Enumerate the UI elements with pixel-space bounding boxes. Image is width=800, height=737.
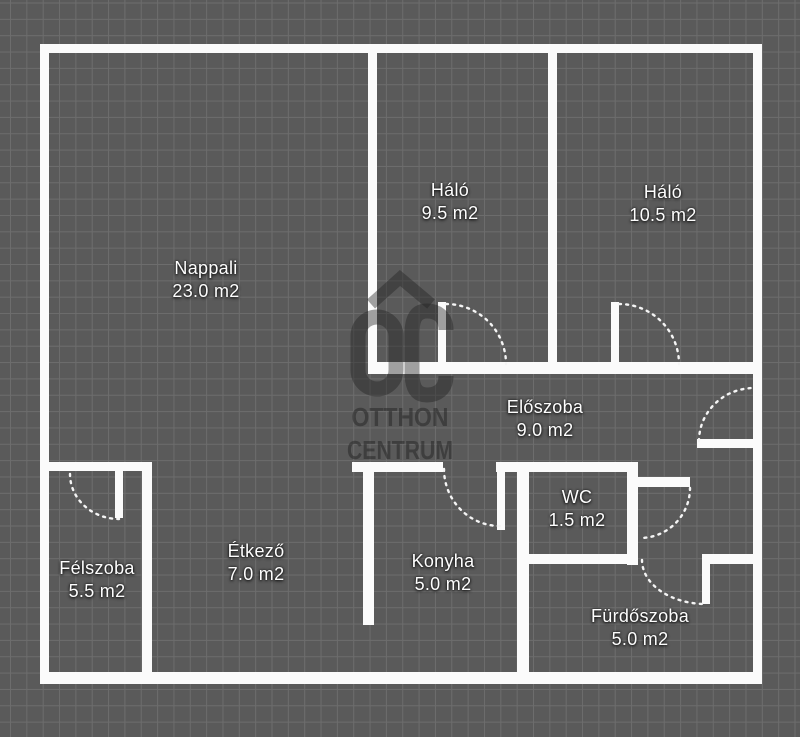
room-name: Nappali: [172, 257, 239, 280]
room-name: Előszoba: [507, 396, 583, 419]
room-name: Háló: [422, 179, 479, 202]
room-name: Konyha: [412, 550, 475, 573]
watermark-roof-icon: [371, 278, 431, 304]
room-name: Félszoba: [59, 557, 134, 580]
room-label-halo-1: Háló 9.5 m2: [422, 179, 479, 225]
room-area: 9.5 m2: [422, 202, 479, 225]
room-area: 5.0 m2: [412, 573, 475, 596]
room-label-nappali: Nappali 23.0 m2: [172, 257, 239, 303]
room-name: Háló: [629, 181, 696, 204]
room-area: 1.5 m2: [549, 509, 606, 532]
watermark-logo-o: [358, 317, 396, 389]
room-name: WC: [549, 486, 606, 509]
watermark-text-centrum: CENTRUM: [347, 435, 453, 465]
room-area: 10.5 m2: [629, 204, 696, 227]
room-label-halo-2: Háló 10.5 m2: [629, 181, 696, 227]
room-area: 7.0 m2: [228, 563, 285, 586]
room-label-felszoba: Félszoba 5.5 m2: [59, 557, 134, 603]
room-label-konyha: Konyha 5.0 m2: [412, 550, 475, 596]
room-label-etkezo: Étkező 7.0 m2: [228, 540, 285, 586]
room-name: Fürdőszoba: [591, 605, 689, 628]
room-area: 23.0 m2: [172, 280, 239, 303]
room-label-furdoszoba: Fürdőszoba 5.0 m2: [591, 605, 689, 651]
floorplan-canvas: OTTHON CENTRUM Nappali 23.0 m2 Háló 9.5 …: [0, 0, 800, 737]
room-area: 9.0 m2: [507, 419, 583, 442]
room-label-eloszoba: Előszoba 9.0 m2: [507, 396, 583, 442]
room-label-wc: WC 1.5 m2: [549, 486, 606, 532]
room-area: 5.0 m2: [591, 628, 689, 651]
watermark-logo-c: [412, 311, 446, 395]
room-area: 5.5 m2: [59, 580, 134, 603]
watermark-text-otthon: OTTHON: [352, 402, 449, 432]
room-name: Étkező: [228, 540, 285, 563]
